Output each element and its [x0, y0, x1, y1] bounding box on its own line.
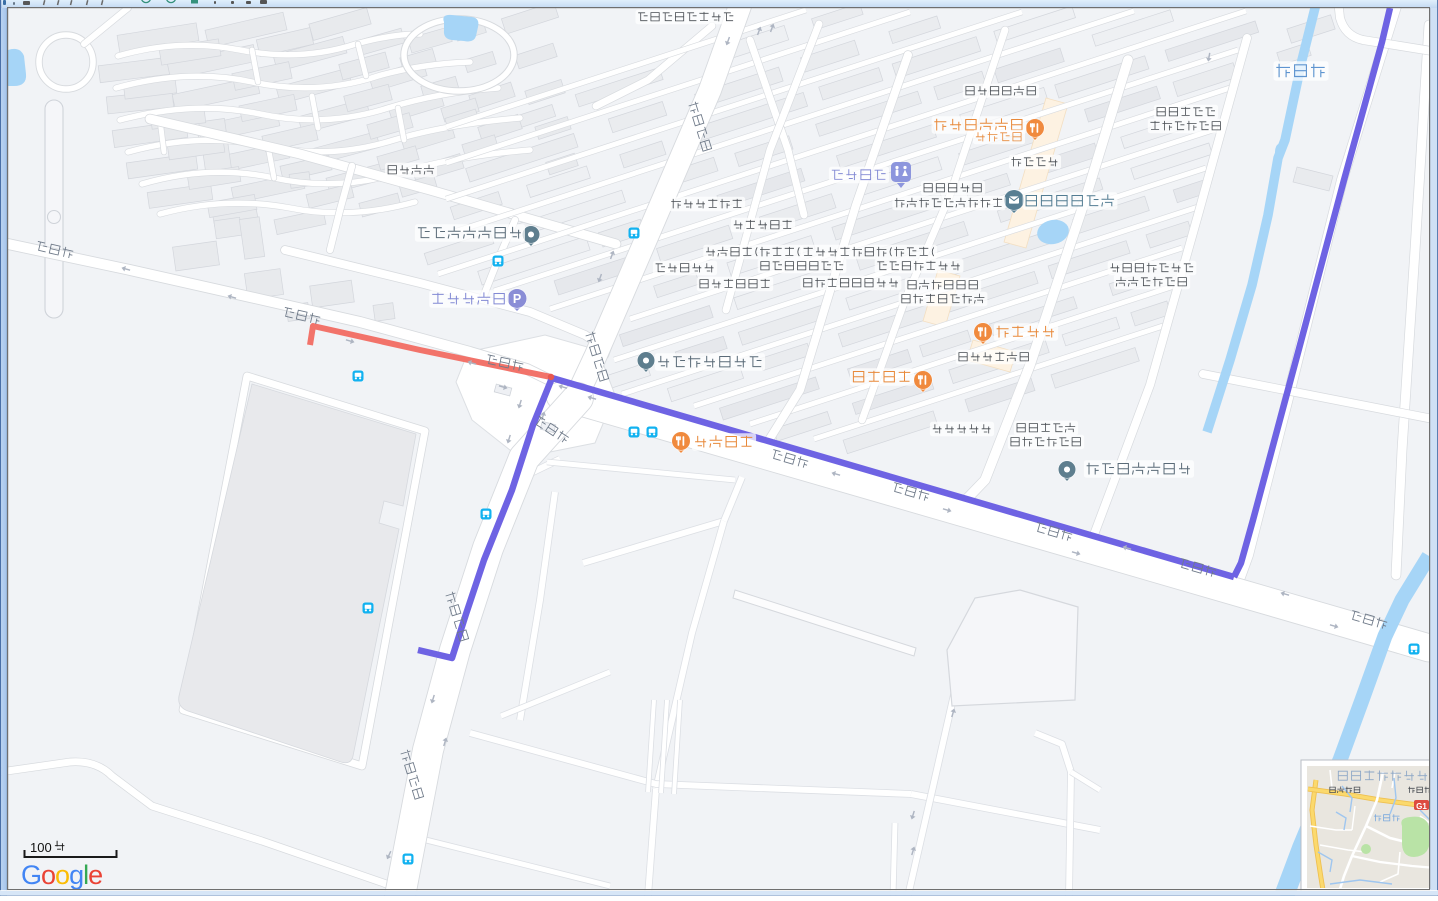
- svg-text:Google: Google: [21, 860, 102, 890]
- svg-text:P: P: [513, 292, 521, 306]
- svg-text:100: 100: [30, 840, 52, 855]
- svg-text:G1: G1: [1416, 802, 1427, 811]
